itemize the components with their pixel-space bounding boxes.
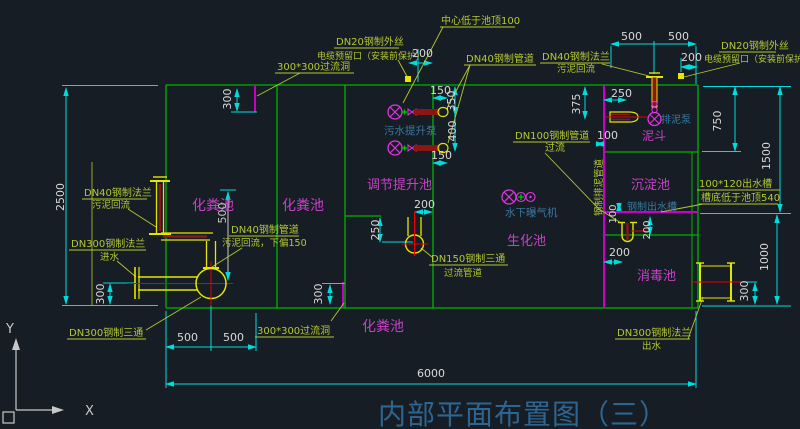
equip-label-sewage-pump: 污水提升泵 bbox=[384, 125, 437, 137]
ucs-origin-box bbox=[3, 412, 14, 423]
note-steel-mud-pipe: 钢制排泥管道 bbox=[593, 158, 605, 216]
aerator-symbol bbox=[502, 190, 535, 204]
dim-100-hopper: 100 bbox=[597, 129, 618, 142]
dim-200-topleft: 200 bbox=[412, 47, 433, 60]
annotation-labels: 中心低于池顶100 DN20钢制外丝 电缆预留口（安装前保护） DN20钢制外丝… bbox=[69, 14, 800, 352]
dim-500-bottom-2: 500 bbox=[223, 331, 244, 344]
note-dn20-right-2: 电缆预留口（安装前保护） bbox=[704, 53, 800, 65]
note-dn300-tee: DN300钢制三通 bbox=[69, 326, 143, 339]
note-dn40-flange-left-1: DN40钢制法兰 bbox=[84, 186, 152, 199]
note-dn40-offset-2: 污泥回流，下偏150 bbox=[222, 237, 307, 249]
dim-400: 400 bbox=[446, 121, 459, 142]
tank-label-disinfection: 消毒池 bbox=[637, 269, 676, 284]
tank-label-biochemical: 生化池 bbox=[507, 234, 546, 249]
note-dn300-inlet-1: DN300钢制法兰 bbox=[71, 237, 145, 250]
dim-200-regulating: 200 bbox=[414, 198, 435, 211]
dim-100-trough: 100 bbox=[608, 204, 619, 223]
dim-300-top: 300 bbox=[221, 89, 234, 110]
equip-label-mud-pump: 排泥泵 bbox=[661, 113, 691, 126]
note-dn20-left-1: DN20钢制外丝 bbox=[336, 35, 404, 48]
note-dn20-left-2: 电缆预留口（安装前保护） bbox=[317, 50, 425, 62]
note-overflow-top: 300*300过流洞 bbox=[277, 60, 350, 73]
dim-375: 375 bbox=[570, 94, 583, 115]
sewage-pump-row-1 bbox=[388, 105, 448, 119]
tank-label-septic-bottom: 化粪池 bbox=[362, 319, 404, 335]
ucs-x-arrowhead bbox=[52, 406, 64, 414]
tank-label-mud-hopper: 泥斗 bbox=[642, 129, 666, 143]
cable-opening-marker-left bbox=[405, 76, 411, 82]
dim-500-inlet: 500 bbox=[216, 203, 229, 224]
note-dn40-pipe: DN40钢制管道 bbox=[466, 52, 534, 65]
equip-label-aerator: 水下曝气机 bbox=[505, 206, 558, 219]
dim-250-regulating: 250 bbox=[369, 220, 382, 241]
note-dn300-inlet-2: 进水 bbox=[100, 251, 120, 263]
note-dn100-2: 过流 bbox=[545, 141, 565, 154]
note-dn20-right-1: DN20钢制外丝 bbox=[721, 39, 789, 52]
ucs-y-arrowhead bbox=[12, 338, 20, 350]
drawing-title: 内部平面布置图（三） bbox=[378, 398, 668, 429]
ucs-y-label: Y bbox=[5, 322, 14, 337]
note-dn300-outlet-1: DN300钢制法兰 bbox=[617, 326, 691, 339]
tank-label-sedimentation: 沉淀池 bbox=[631, 178, 670, 193]
note-dn40-flange-top-1: DN40钢制法兰 bbox=[542, 50, 610, 63]
drawing: 化粪池 化粪池 化粪池 调节提升池 生化池 泥斗 沉淀池 消毒池 污水提升泵 水… bbox=[0, 0, 800, 429]
note-dn40-flange-left-2: 污泥回流 bbox=[92, 199, 131, 211]
tank-label-septic-mid: 化粪池 bbox=[282, 198, 324, 214]
outlet-pipe-assembly bbox=[692, 263, 742, 301]
note-dn40-offset-1: DN40钢制管道 bbox=[231, 223, 299, 236]
dim-6000: 6000 bbox=[417, 367, 445, 380]
dim-300-inlet: 300 bbox=[94, 284, 107, 305]
note-center-below-top: 中心低于池顶100 bbox=[441, 14, 520, 27]
dim-300-hole-bottom: 300 bbox=[312, 284, 325, 305]
dim-750: 750 bbox=[711, 111, 724, 132]
equip-label-outlet-trough: 钢制出水槽 bbox=[627, 200, 677, 213]
note-dn300-outlet-2: 出水 bbox=[642, 340, 662, 352]
note-overflow-bottom: 300*300过流洞 bbox=[257, 324, 330, 337]
tank-label-regulating: 调节提升池 bbox=[367, 177, 432, 193]
dim-500-top-2: 500 bbox=[668, 30, 689, 43]
note-dn100-1: DN100钢制管道 bbox=[515, 129, 589, 142]
dim-250-hopper: 250 bbox=[611, 87, 632, 100]
note-dn150-tee-2: 过流管道 bbox=[444, 267, 483, 279]
ucs-icon bbox=[3, 338, 64, 423]
note-dn40-flange-top-2: 污泥回流 bbox=[557, 63, 596, 75]
dim-500-top-1: 500 bbox=[621, 30, 642, 43]
note-dn150-tee-1: DN150钢制三通 bbox=[431, 252, 505, 265]
dim-150-b: 150 bbox=[431, 149, 452, 162]
cad-canvas[interactable]: 化粪池 化粪池 化粪池 调节提升池 生化池 泥斗 沉淀池 消毒池 污水提升泵 水… bbox=[0, 0, 800, 429]
regulating-tee bbox=[402, 212, 428, 256]
ucs-x-label: X bbox=[85, 404, 94, 419]
dim-1500: 1500 bbox=[760, 142, 773, 170]
dim-200-disinfect: 200 bbox=[609, 246, 630, 259]
dim-500-bottom-1: 500 bbox=[177, 331, 198, 344]
tank-walls bbox=[166, 85, 698, 308]
dim-350: 350 bbox=[445, 91, 458, 112]
dim-300-outlet: 300 bbox=[738, 281, 751, 302]
dim-200-trough: 200 bbox=[642, 220, 653, 239]
dim-2500: 2500 bbox=[54, 183, 67, 211]
note-outlet-trough-2: 槽底低于池顶540 bbox=[701, 191, 780, 204]
dim-1000: 1000 bbox=[758, 243, 771, 271]
cable-opening-marker-right bbox=[678, 73, 684, 79]
dim-200-topright: 200 bbox=[681, 51, 702, 64]
note-outlet-trough-1: 100*120出水槽 bbox=[699, 177, 772, 190]
